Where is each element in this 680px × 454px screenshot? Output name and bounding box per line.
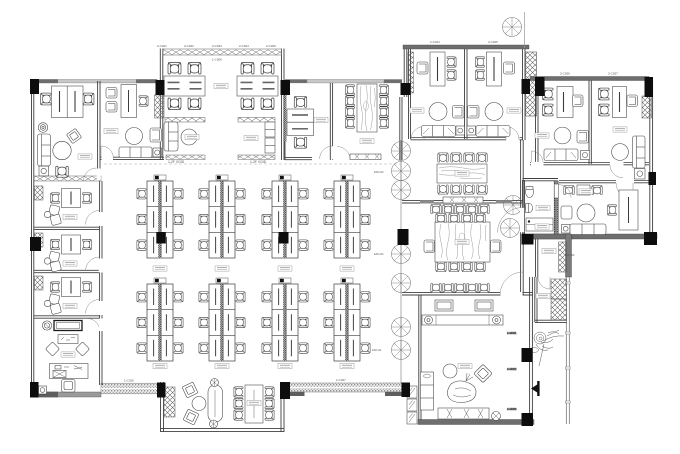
svg-text:1-2F VOID: 1-2F VOID	[168, 160, 185, 164]
svg-text:2-C021: 2-C021	[157, 44, 167, 48]
svg-text:2-C023: 2-C023	[212, 44, 222, 48]
svg-text:FAN-03: FAN-03	[374, 170, 384, 174]
svg-text:2-M022: 2-M022	[507, 367, 517, 371]
svg-text:2-C022: 2-C022	[184, 44, 194, 48]
svg-text:2-C025: 2-C025	[488, 40, 498, 44]
svg-text:1-C026: 1-C026	[124, 379, 134, 383]
svg-text:1-C027: 1-C027	[336, 378, 346, 382]
svg-text:2-C026: 2-C026	[560, 72, 570, 76]
svg-text:2-C025: 2-C025	[266, 44, 276, 48]
svg-text:1-C006: 1-C006	[212, 58, 222, 62]
svg-text:2-M023: 2-M023	[507, 407, 517, 411]
svg-text:2-C024: 2-C024	[239, 44, 249, 48]
svg-text:2-M021: 2-M021	[507, 331, 517, 335]
svg-text:FAN-01: FAN-01	[372, 348, 382, 352]
svg-text:1-2F VOID: 1-2F VOID	[250, 160, 267, 164]
svg-text:FAN-04: FAN-04	[374, 252, 384, 256]
svg-text:FAN-02: FAN-02	[565, 253, 575, 257]
svg-text:2-C024: 2-C024	[430, 40, 440, 44]
svg-text:2-C027: 2-C027	[608, 72, 618, 76]
